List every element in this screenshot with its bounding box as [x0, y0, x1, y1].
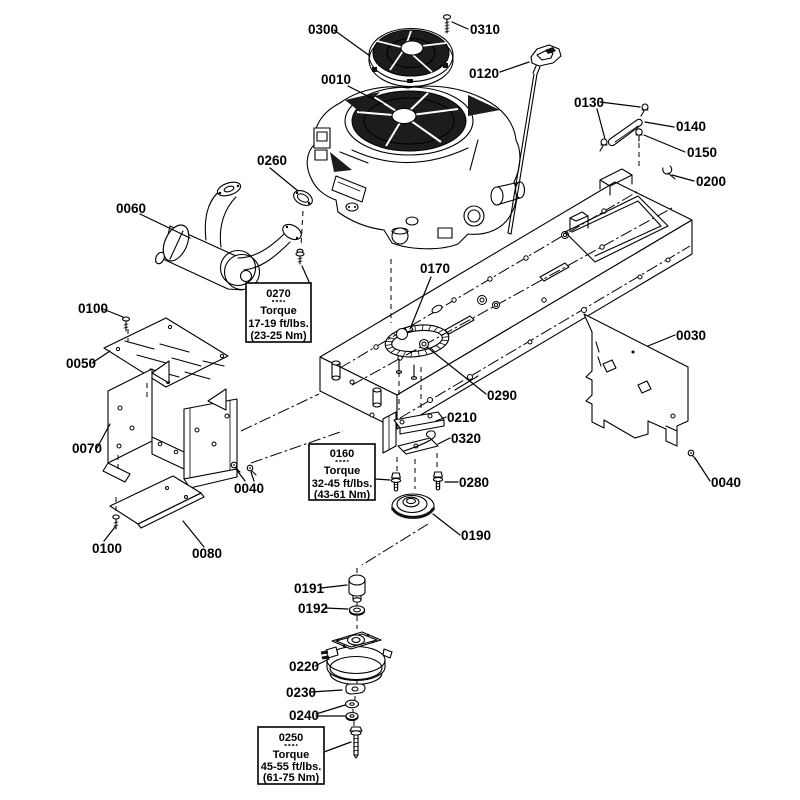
part-label-0070: 0070 — [72, 441, 102, 456]
part-label-0230: 0230 — [286, 685, 316, 700]
fan-screen-drawing — [369, 29, 453, 87]
part-label-0191: 0191 — [294, 581, 325, 596]
part-label-0190: 0190 — [461, 528, 491, 543]
part-label-0320: 0320 — [451, 431, 481, 446]
torque-box-0270: 0270 Torque 17-19 ft/lbs. (23-25 Nm) — [246, 283, 311, 342]
washers-0240-drawing — [346, 700, 359, 720]
torque-box-ftlbs: 17-19 ft/lbs. — [248, 318, 309, 330]
ball-stud-drawing-lower — [600, 139, 607, 151]
torque-box-part: 0160 — [330, 448, 354, 460]
torque-box-0160: 0160 Torque 32-45 ft/lbs. (43-61 Nm) — [309, 444, 375, 501]
part-label-0080: 0080 — [192, 546, 222, 561]
part-label-0290: 0290 — [487, 388, 517, 403]
retainer-clip-drawing — [663, 166, 675, 179]
torque-box-part: 0270 — [266, 288, 290, 300]
screw-0100-top-drawing — [123, 317, 130, 331]
spacer-0191-drawing — [349, 575, 365, 602]
part-label-0040-right: 0040 — [711, 475, 741, 490]
part-label-0300: 0300 — [308, 22, 338, 37]
part-label-0310: 0310 — [470, 22, 500, 37]
part-label-0170: 0170 — [420, 261, 450, 276]
part-label-0040-left: 0040 — [234, 481, 264, 496]
torque-box-word: Torque — [324, 465, 360, 477]
heat-shield-panel-0030-drawing — [584, 314, 688, 446]
screen-foot — [443, 63, 448, 68]
flange-bolt-0280-drawing — [433, 472, 442, 490]
crankshaft-pulley-0190-drawing — [392, 494, 434, 518]
part-label-0260: 0260 — [257, 153, 287, 168]
part-label-0210: 0210 — [447, 410, 477, 425]
clutch-bolt-0250-drawing — [350, 727, 362, 758]
torque-box-nm: (61-75 Nm) — [263, 772, 320, 784]
torque-box-nm: (43-61 Nm) — [314, 489, 371, 501]
part-label-0050: 0050 — [66, 356, 96, 371]
flange-bolt-0160-drawing — [391, 473, 400, 491]
part-label-0120: 0120 — [469, 66, 499, 81]
part-label-0010: 0010 — [321, 72, 351, 87]
torque-box-word: Torque — [273, 749, 309, 761]
torque-box-word: Torque — [260, 305, 296, 317]
torque-box-0250: 0250 Torque 45-55 ft/lbs. (61-75 Nm) — [258, 727, 324, 784]
part-label-0280: 0280 — [459, 475, 489, 490]
screw-0100-bottom-drawing — [113, 515, 119, 529]
part-label-0150: 0150 — [687, 145, 717, 160]
flange-bolt-0270-drawing — [296, 249, 304, 264]
engine-drawing — [307, 86, 524, 249]
screw-0310-drawing — [444, 15, 451, 33]
muffler-drawing — [154, 180, 304, 290]
part-label-0200: 0200 — [696, 174, 726, 189]
part-label-0100-top: 0100 — [78, 301, 108, 316]
part-label-0060: 0060 — [116, 201, 146, 216]
part-label-0130: 0130 — [574, 95, 604, 110]
exhaust-gasket-drawing — [291, 188, 315, 209]
torque-box-part: 0250 — [279, 732, 303, 744]
torque-box-nm: (23-25 Nm) — [250, 330, 307, 342]
part-label-0100-bottom: 0100 — [92, 541, 122, 556]
part-label-0030: 0030 — [676, 328, 706, 343]
screen-foot — [372, 67, 377, 72]
hook-0320-drawing — [398, 431, 438, 454]
part-label-0192: 0192 — [298, 601, 328, 616]
ball-stud-drawing-upper — [641, 104, 648, 116]
screen-foot — [407, 79, 413, 83]
part-label-0220: 0220 — [289, 659, 319, 674]
part-label-0240: 0240 — [289, 708, 319, 723]
electric-clutch-0220-drawing — [321, 632, 392, 685]
washer-0192-drawing — [350, 606, 365, 615]
part-label-0140: 0140 — [676, 119, 706, 134]
ball-stud-drawing-0150 — [636, 129, 642, 141]
washer-0230-drawing — [346, 684, 365, 694]
exploded-parts-diagram: 0300 0310 0010 0120 0130 0140 0150 0200 … — [0, 0, 800, 800]
diagram-canvas: 0300 0310 0010 0120 0130 0140 0150 0200 … — [0, 0, 800, 800]
